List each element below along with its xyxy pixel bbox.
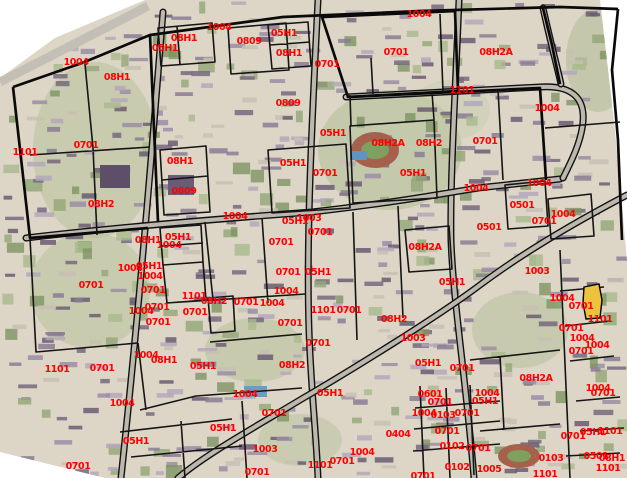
building-block (382, 465, 397, 468)
parcel-label: 05H1 (305, 267, 331, 278)
building-block (562, 278, 579, 282)
building-block (512, 291, 528, 295)
building-block (589, 159, 608, 164)
building-block (234, 457, 244, 460)
parcel-label: 1004 (110, 398, 136, 409)
building-block (218, 367, 236, 370)
parcel-label: 0701 (591, 388, 616, 399)
parcel-label: 0701 (183, 307, 208, 318)
building-block (115, 86, 126, 91)
building-block (479, 34, 496, 37)
parcel-label: 05H1 (320, 128, 346, 139)
swimming-pool (350, 151, 367, 160)
building-block (382, 278, 391, 283)
building-block (235, 110, 253, 115)
building-block (538, 401, 550, 406)
building-block (166, 337, 177, 342)
parcel-label: 05H1 (271, 28, 297, 39)
parcel-label: 0809 (276, 98, 301, 109)
building-block (203, 133, 213, 137)
building-block (347, 18, 357, 23)
building-block (594, 410, 614, 415)
building-block (57, 417, 67, 421)
building-block (175, 92, 193, 96)
parcel-label: 08H1 (151, 355, 177, 366)
parcel-label: 1101 (45, 364, 70, 375)
parcel-label: 0809 (172, 186, 197, 197)
parcel-label: 0701 (262, 408, 287, 419)
building-block (198, 269, 214, 273)
building-block (280, 136, 290, 141)
building-block (56, 81, 70, 86)
building-block (438, 41, 448, 52)
parcel-label: 05H1 (123, 436, 149, 447)
building-block (599, 182, 610, 185)
parcel-label: 1101 (450, 85, 475, 96)
building-block (233, 163, 250, 175)
building-block (364, 389, 372, 395)
building-block (520, 61, 535, 66)
building-block (604, 443, 614, 451)
building-block (483, 170, 498, 175)
building-block (516, 216, 531, 223)
parcel-label: 1101 (598, 426, 623, 437)
building-block (102, 270, 109, 276)
building-block (81, 49, 95, 54)
building-block (578, 156, 591, 160)
parcel-label: 1004 (64, 57, 90, 68)
building-block (315, 185, 334, 190)
parcel-label: 0701 (315, 59, 340, 70)
building-block (361, 50, 373, 54)
building-block (516, 468, 529, 472)
building-block (79, 224, 91, 228)
building-block (26, 272, 40, 276)
building-block (100, 379, 110, 383)
building-block (257, 260, 265, 263)
parcel-label: 0701 (306, 338, 331, 349)
parcel-label: 0701 (466, 443, 491, 454)
parcel-label: 0701 (450, 363, 475, 374)
parcel-label: 0102 (440, 441, 465, 452)
building-block (244, 379, 262, 386)
building-block (231, 227, 238, 236)
building-block (240, 414, 249, 419)
building-block (385, 35, 401, 39)
parcel-label: 0701 (337, 305, 362, 316)
building-block (181, 71, 193, 75)
parcel-label: 08H1 (167, 156, 193, 167)
building-block (505, 363, 512, 372)
building-block (146, 412, 155, 416)
building-block (175, 135, 184, 139)
cadastral-map-canvas[interactable]: 100408H11101070108H205H108H11004080905H1… (0, 0, 627, 478)
parcel-label: 05H1 (152, 43, 178, 54)
building-block (298, 461, 307, 465)
building-block (43, 378, 59, 382)
building-block (277, 437, 293, 441)
building-block (391, 407, 399, 416)
building-block (422, 41, 432, 46)
building-block (480, 359, 500, 364)
building-block (562, 71, 577, 75)
parcel-label: 1101 (311, 305, 336, 316)
building-block (602, 400, 620, 404)
building-block (338, 319, 346, 324)
building-block (566, 49, 574, 55)
building-block (83, 408, 98, 413)
building-block (30, 296, 44, 307)
parcel-label: 05H1 (439, 277, 465, 288)
building-block (248, 309, 258, 314)
building-block (539, 321, 558, 326)
building-block (481, 177, 490, 181)
building-block (4, 235, 11, 243)
building-block (383, 80, 399, 84)
building-block (38, 344, 55, 349)
building-block (160, 343, 177, 347)
building-block (426, 121, 438, 132)
building-block (209, 148, 227, 153)
building-block (55, 307, 70, 310)
building-block (163, 128, 173, 132)
parcel-label: 05H1 (210, 423, 236, 434)
building-block (5, 329, 17, 340)
building-block (258, 355, 274, 361)
building-block (23, 255, 35, 267)
building-block (294, 137, 303, 141)
parcel-label: 1004 (464, 183, 490, 194)
building-block (539, 337, 552, 341)
building-block (357, 472, 371, 476)
building-block (164, 346, 173, 350)
parcel-label: 0701 (313, 168, 338, 179)
parcel-label: 0701 (234, 297, 259, 308)
building-block (54, 199, 66, 211)
building-block (111, 289, 127, 292)
building-block (159, 380, 173, 384)
building-block (74, 298, 82, 303)
building-block (383, 272, 397, 275)
building-block (9, 116, 16, 123)
building-block (222, 332, 238, 338)
building-block (50, 91, 60, 97)
building-block (135, 137, 144, 140)
parcel-label: 0404 (386, 429, 412, 440)
building-block (562, 259, 571, 264)
building-block (373, 295, 384, 299)
building-block (106, 337, 118, 348)
building-block (67, 154, 77, 157)
parcel-label: 1004 (233, 389, 259, 400)
building-block (575, 421, 590, 426)
parcel-label: 05H1 (280, 158, 306, 169)
building-block (38, 305, 56, 309)
building-block (124, 34, 143, 38)
parcel-label: 0701 (532, 216, 557, 227)
building-block (105, 37, 116, 40)
parcel-label: 1101 (308, 460, 333, 471)
building-block (189, 115, 195, 122)
building-block (83, 248, 92, 259)
building-block (250, 221, 260, 226)
building-block (168, 141, 178, 147)
building-block (28, 355, 43, 360)
building-block (47, 332, 63, 336)
parcel-label: 0701 (245, 467, 270, 478)
building-block (59, 271, 76, 276)
building-block (98, 393, 111, 397)
building-block (377, 250, 388, 254)
parcel-label: 08H1 (171, 33, 197, 44)
building-block (378, 262, 387, 267)
building-block (356, 248, 371, 253)
building-block (499, 418, 510, 423)
building-block (396, 290, 413, 294)
building-block (199, 194, 208, 204)
building-block (18, 384, 37, 388)
building-block (261, 167, 281, 170)
building-block (505, 469, 517, 474)
building-block (235, 244, 250, 256)
parcel-label: 0701 (569, 346, 594, 357)
building-block (415, 152, 425, 157)
parcel-label: 0701 (473, 136, 498, 147)
building-block (171, 17, 191, 20)
building-block (129, 58, 148, 61)
building-block (531, 395, 544, 400)
building-block (205, 398, 222, 403)
building-block (437, 376, 457, 379)
building-block (121, 55, 128, 67)
building-block (277, 179, 290, 186)
building-block (352, 418, 362, 424)
parcel-label: 0701 (384, 47, 409, 58)
parcel-label: 08H1 (104, 72, 130, 83)
parcel-label: 08H2A (479, 47, 513, 58)
building-block (125, 66, 141, 70)
parcel-label: 08H2A (408, 242, 442, 253)
building-block (338, 39, 351, 43)
parcel-label: 0701 (411, 471, 436, 478)
parcel-label: 08H2A (371, 138, 405, 149)
building-block (591, 368, 601, 372)
building-block (181, 80, 189, 88)
parcel-label: 05H1 (472, 396, 498, 407)
building-block (72, 187, 79, 195)
building-block (216, 343, 227, 347)
building-block (504, 243, 516, 247)
building-block (429, 325, 444, 329)
parcel-label: 1004 (407, 9, 433, 20)
building-block (336, 296, 343, 304)
building-block (260, 350, 269, 355)
building-block (217, 371, 236, 375)
parcel-label: 1004 (274, 286, 300, 297)
building-block (199, 2, 205, 14)
building-block (474, 252, 490, 257)
parcel-label: 0809 (237, 36, 262, 47)
building-block (462, 205, 480, 210)
building-block (616, 257, 627, 261)
building-block (240, 76, 255, 80)
parcel-label: 0701 (455, 408, 480, 419)
building-block (425, 134, 440, 137)
parcel-label: 08H2 (279, 360, 305, 371)
building-block (375, 375, 391, 379)
parcel-label: 1004 (157, 240, 183, 251)
parcel-label: 1004 (207, 22, 233, 33)
parcel-label: 1003 (401, 333, 426, 344)
building-block (195, 373, 206, 380)
parcel-label: 1003 (525, 266, 550, 277)
building-block (12, 325, 26, 330)
building-block (40, 240, 56, 245)
building-block (219, 466, 228, 471)
building-block (248, 319, 256, 330)
building-block (141, 466, 150, 475)
building-block (203, 58, 212, 62)
building-block (417, 213, 435, 217)
parcel-label: 0701 (330, 456, 355, 467)
building-block (5, 274, 15, 277)
building-block (375, 457, 394, 462)
building-block (538, 431, 546, 439)
building-block (112, 133, 121, 138)
building-block (8, 229, 18, 233)
parcel-label: 1004 (223, 211, 249, 222)
building-block (317, 296, 336, 300)
building-block (54, 440, 72, 445)
building-block (421, 57, 431, 62)
building-block (292, 425, 308, 428)
parcel-label: 05H1 (317, 388, 343, 399)
parcel-label: 05H1 (400, 168, 426, 179)
building-block (332, 82, 351, 86)
building-block (270, 79, 285, 83)
building-block (283, 116, 293, 120)
parcel-label: 08H2 (416, 138, 442, 149)
parcel-label: 0701 (145, 302, 170, 313)
building-block (314, 281, 326, 288)
building-block (196, 275, 215, 279)
large-building (100, 165, 130, 188)
parcel-label: 0701 (308, 227, 333, 238)
building-block (4, 196, 13, 200)
school-field (507, 450, 531, 462)
parcel-label: 1101 (596, 463, 621, 474)
building-block (156, 471, 164, 475)
building-block (607, 367, 626, 370)
building-block (37, 208, 47, 213)
building-block (7, 243, 24, 253)
building-block (251, 170, 264, 183)
building-block (519, 192, 539, 196)
building-block (27, 162, 45, 167)
building-block (183, 250, 201, 254)
building-block (432, 370, 447, 375)
parcel-label: 0701 (428, 397, 453, 408)
building-block (607, 278, 624, 283)
parcel-label: 0701 (66, 461, 91, 472)
building-block (420, 204, 430, 207)
building-block (422, 344, 438, 347)
building-block (529, 254, 543, 266)
building-block (523, 306, 539, 311)
building-block (226, 461, 241, 466)
building-block (568, 60, 583, 64)
parcel-label: 1003 (253, 444, 278, 455)
parcel-label: 0701 (269, 237, 294, 248)
building-block (559, 121, 574, 126)
building-block (365, 174, 381, 179)
building-block (231, 2, 246, 5)
building-block (53, 74, 67, 79)
building-block (5, 217, 24, 220)
building-block (47, 149, 57, 153)
building-block (242, 98, 256, 103)
parcel-label: 0701 (278, 318, 303, 329)
parcel-label: 05H1 (415, 358, 441, 369)
building-block (345, 393, 356, 398)
parcel-label: 0103 (431, 410, 456, 421)
parcel-label: 0103 (539, 453, 564, 464)
building-block (465, 20, 484, 25)
building-block (378, 329, 390, 332)
building-block (177, 447, 186, 451)
building-block (318, 316, 331, 320)
building-block (122, 123, 142, 127)
building-block (186, 321, 203, 332)
building-block (466, 116, 477, 125)
building-block (280, 372, 291, 375)
parcel-label: 0701 (141, 285, 166, 296)
building-block (148, 448, 160, 451)
parcel-label: 0501 (477, 222, 502, 233)
building-block (32, 100, 47, 104)
building-block (296, 111, 303, 123)
building-block (358, 458, 367, 463)
building-block (448, 339, 457, 343)
building-block (474, 150, 490, 154)
building-block (357, 435, 372, 440)
building-block (3, 165, 19, 173)
building-block (191, 71, 210, 76)
parcel-label: 0701 (90, 363, 115, 374)
parcel-label: 0701 (74, 140, 99, 151)
parcel-label: 0501 (510, 200, 535, 211)
building-block (90, 340, 102, 344)
building-block (108, 314, 122, 322)
building-block (511, 117, 523, 122)
building-block (47, 127, 60, 132)
building-block (108, 467, 117, 471)
building-block (382, 27, 392, 31)
map-viewport[interactable]: 100408H11101070108H205H108H11004080905H1… (0, 0, 627, 478)
parcel-label: 1101 (13, 147, 38, 158)
parcel-label: 1004 (527, 178, 553, 189)
building-block (412, 76, 426, 79)
building-block (526, 315, 541, 319)
parcel-label: 1004 (535, 103, 561, 114)
building-block (464, 318, 474, 322)
building-block (227, 152, 239, 156)
building-block (211, 125, 224, 128)
building-block (460, 240, 477, 244)
building-block (551, 93, 559, 102)
parcel-label: 1005 (477, 464, 502, 475)
building-block (408, 217, 418, 221)
